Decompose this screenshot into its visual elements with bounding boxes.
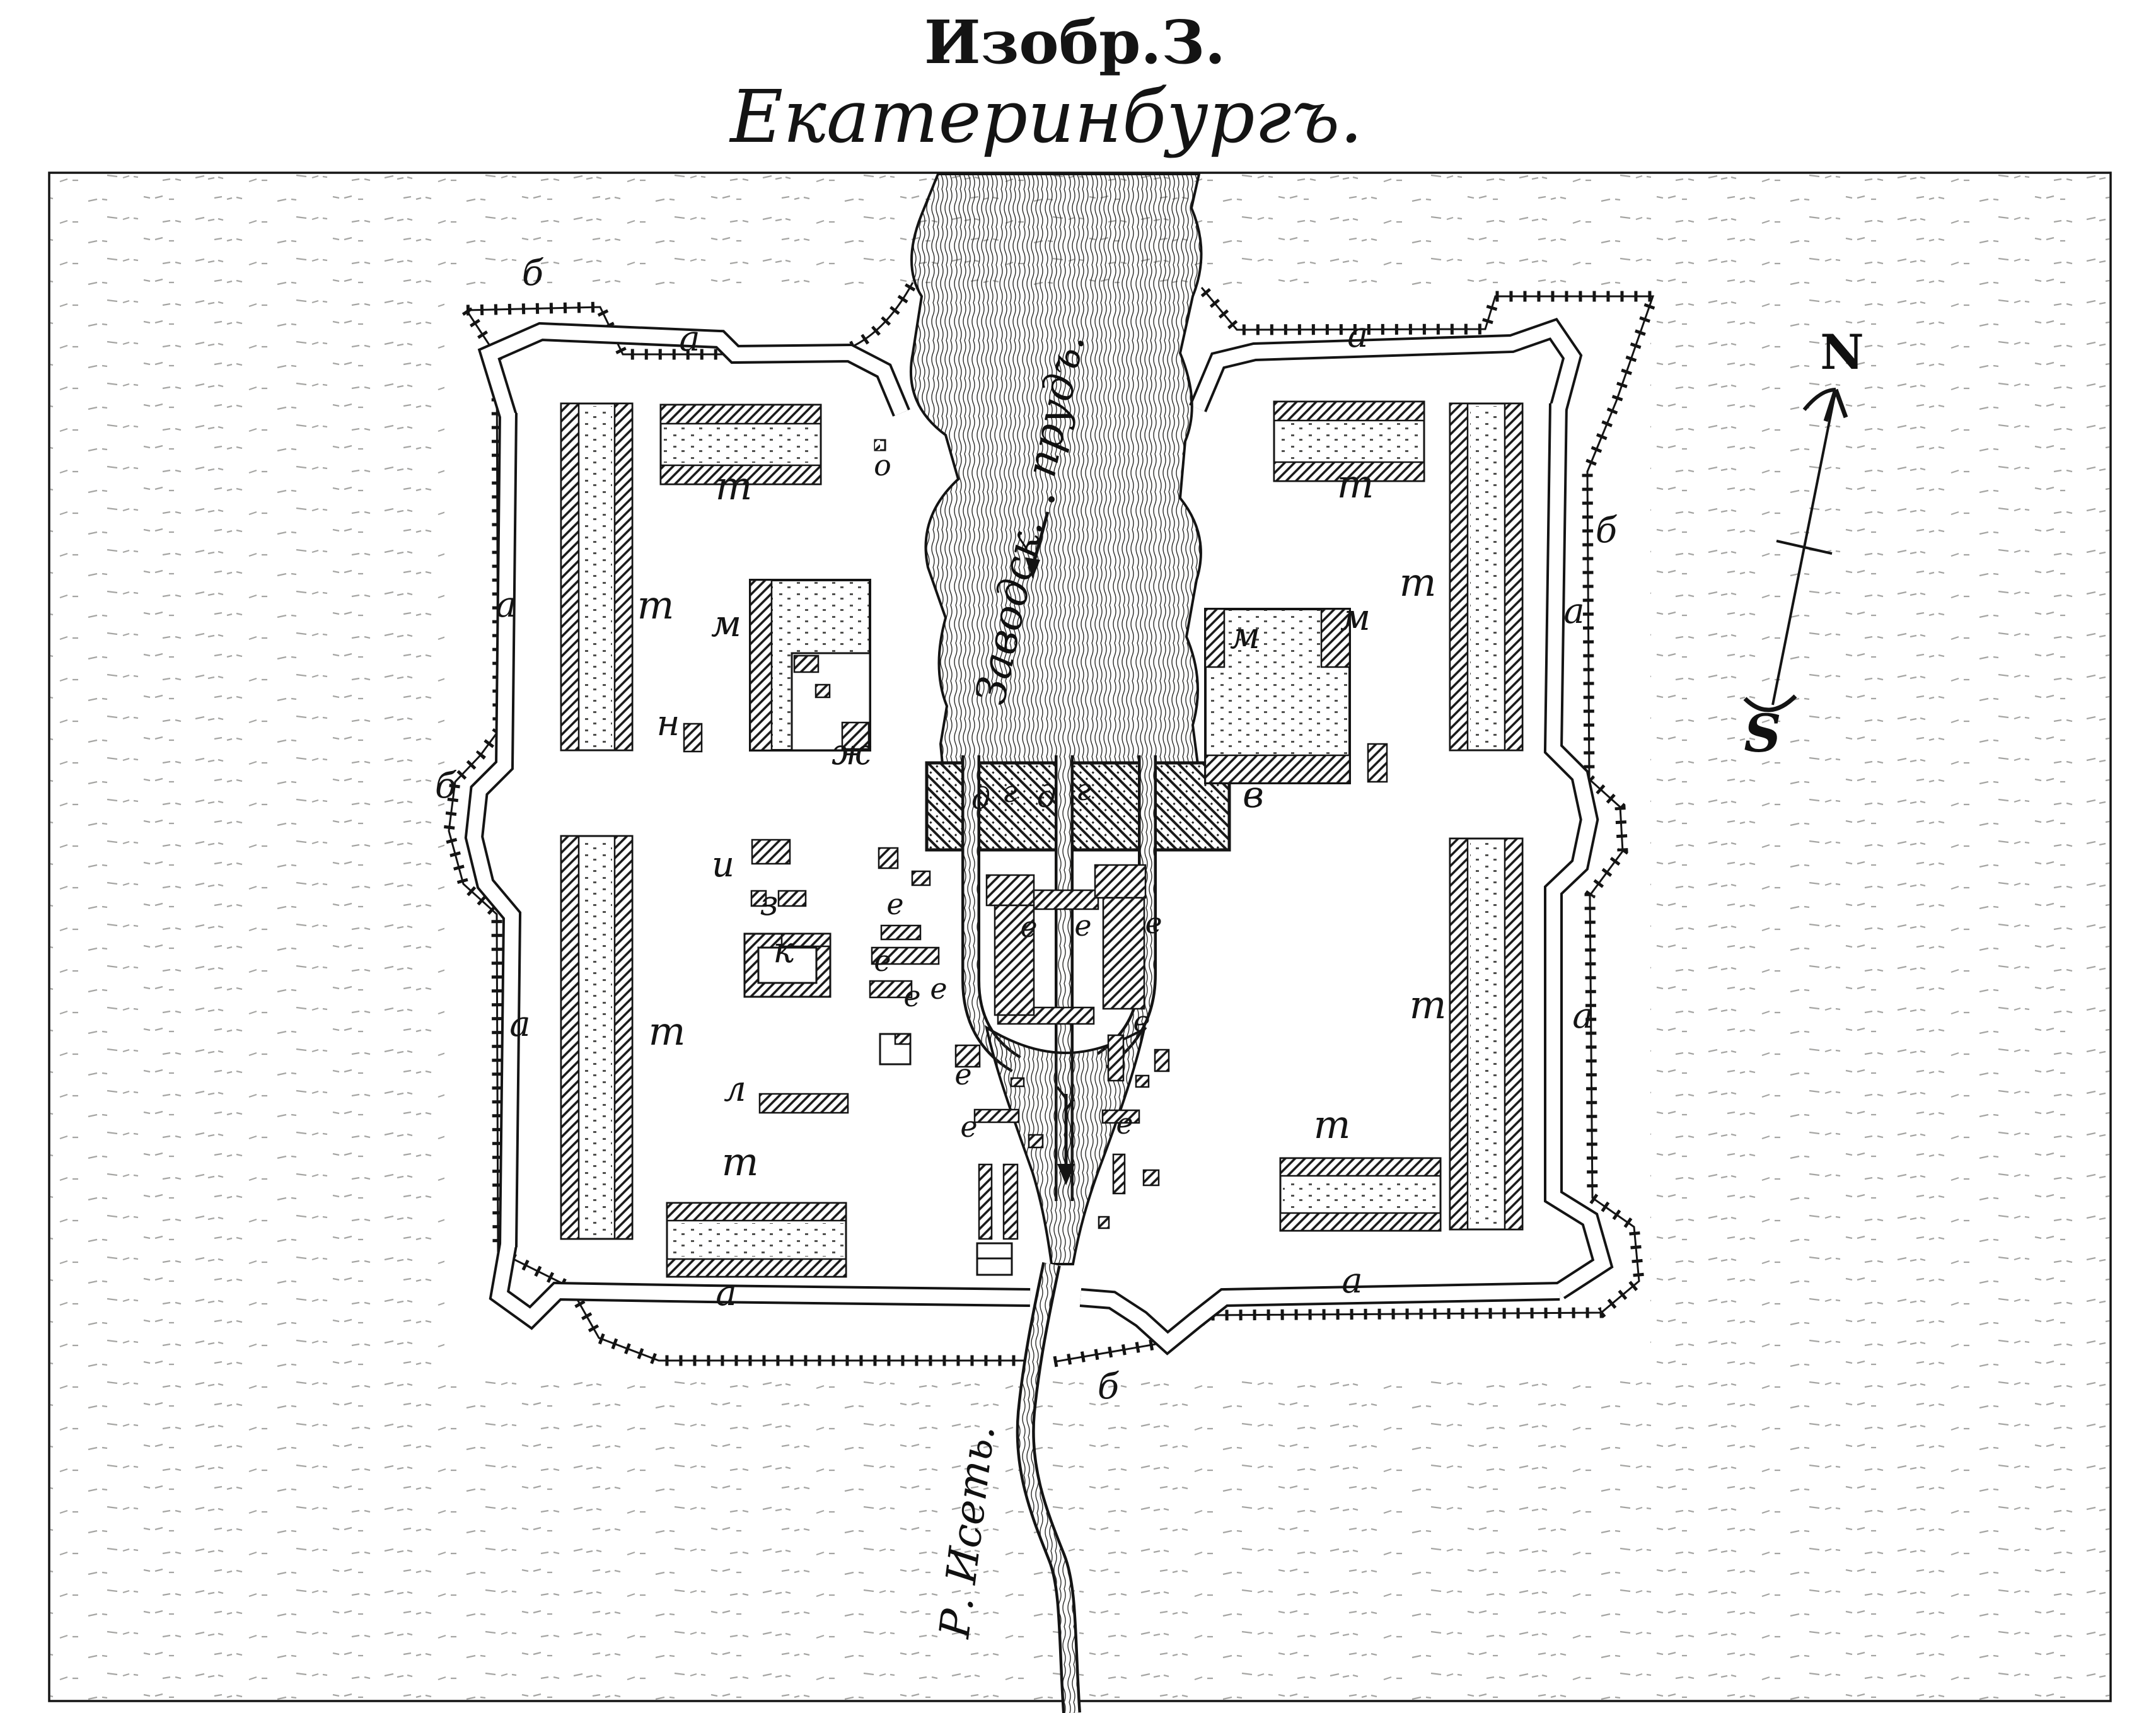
compass-north-label: N: [1820, 324, 1863, 380]
map-figure-ekaterinburg: Изобр.З. Екатеринбургъ. Заводск.: [0, 0, 2156, 1713]
map-letter-т: т: [1410, 982, 1447, 1028]
map-letter-а: а: [679, 318, 700, 359]
map-letter-а: а: [716, 1273, 736, 1314]
map-letter-г: г: [1076, 772, 1091, 808]
map-letter-т: т: [716, 463, 753, 509]
map-letter-и: и: [712, 844, 734, 885]
building: [975, 1110, 1019, 1122]
map-letter-а: а: [1563, 591, 1584, 632]
map-letter-т: т: [722, 1139, 759, 1185]
map-letter-е: е: [1116, 1106, 1133, 1141]
map-letter-е: е: [903, 979, 920, 1013]
map-letter-г: г: [1002, 774, 1017, 810]
quarter-block-west-upper: [561, 404, 632, 750]
east-compound: [1205, 609, 1350, 783]
map-letter-в: в: [1243, 773, 1264, 816]
factory-building-east: [1095, 865, 1145, 1009]
building: [1113, 1154, 1125, 1193]
map-letter-е: е: [1133, 1004, 1150, 1038]
map-letter-а: а: [509, 1004, 530, 1045]
south-gate-structure: [977, 1243, 1012, 1275]
map-letter-н: н: [657, 703, 680, 744]
map-letter-д: д: [1037, 779, 1056, 815]
building: [979, 1164, 992, 1239]
quarter-block-se-horizontal: [1280, 1158, 1440, 1231]
map-letter-е: е: [960, 1110, 977, 1144]
map-letter-ж: ж: [832, 732, 872, 773]
building: [1011, 1078, 1024, 1086]
map-letter-е: е: [1020, 910, 1037, 944]
map-letter-т: т: [649, 1008, 686, 1054]
quarter-block-east-upper: [1450, 404, 1522, 750]
map-letter-е: е: [874, 944, 891, 978]
building-l: [760, 1094, 848, 1113]
building-z: [779, 891, 806, 906]
map-letter-т: т: [1400, 559, 1437, 605]
map-letter-е: е: [954, 1057, 971, 1091]
map-letter-м: м: [1230, 614, 1260, 657]
building: [881, 926, 920, 939]
building-n: [684, 724, 702, 752]
map-letter-а: а: [1347, 315, 1368, 356]
building: [1144, 1170, 1159, 1185]
building-i: [752, 840, 790, 864]
map-letter-а: а: [1572, 996, 1593, 1037]
map-letter-т: т: [637, 582, 675, 628]
map-letter-б: б: [1098, 1366, 1120, 1407]
map-letter-т: т: [1314, 1101, 1351, 1147]
map-letter-е: е: [1145, 906, 1162, 940]
map-letter-е: е: [930, 972, 947, 1006]
map-letter-з: з: [760, 883, 778, 923]
quarter-block-sw-horizontal: [667, 1203, 846, 1277]
map-letter-е: е: [886, 887, 903, 921]
compass-south-label: S: [1744, 704, 1781, 764]
building: [1108, 1035, 1123, 1081]
map-letter-о: о: [874, 448, 891, 482]
quarter-block-east-lower: [1450, 839, 1522, 1229]
place-name-title: Екатеринбургъ.: [729, 75, 1363, 160]
map-letter-б: б: [435, 765, 457, 806]
map-letter-е: е: [1074, 909, 1091, 943]
quarter-block-west-lower: [561, 836, 632, 1239]
building: [912, 871, 930, 885]
map-letter-а: а: [1342, 1260, 1362, 1301]
scanned-map-page: Изобр.З. Екатеринбургъ. Заводск.: [0, 0, 2156, 1713]
map-letter-б: б: [522, 253, 544, 294]
west-compound: [750, 580, 870, 750]
map-letter-б: б: [1596, 510, 1618, 551]
map-letter-а: а: [496, 584, 516, 625]
figure-number-title: Изобр.З.: [924, 8, 1226, 78]
building: [879, 848, 898, 868]
building: [1368, 744, 1387, 782]
map-letter-т: т: [1337, 461, 1374, 507]
open-yard-square: [880, 1034, 910, 1064]
map-letter-л: л: [724, 1069, 746, 1110]
building: [1155, 1050, 1169, 1071]
building: [1099, 1217, 1109, 1228]
map-letter-м: м: [1340, 596, 1371, 639]
building: [1004, 1164, 1017, 1239]
map-letter-к: к: [773, 930, 794, 971]
building: [1136, 1076, 1149, 1087]
map-letter-д: д: [971, 781, 990, 816]
map-letter-м: м: [711, 602, 741, 645]
building: [1029, 1135, 1043, 1147]
